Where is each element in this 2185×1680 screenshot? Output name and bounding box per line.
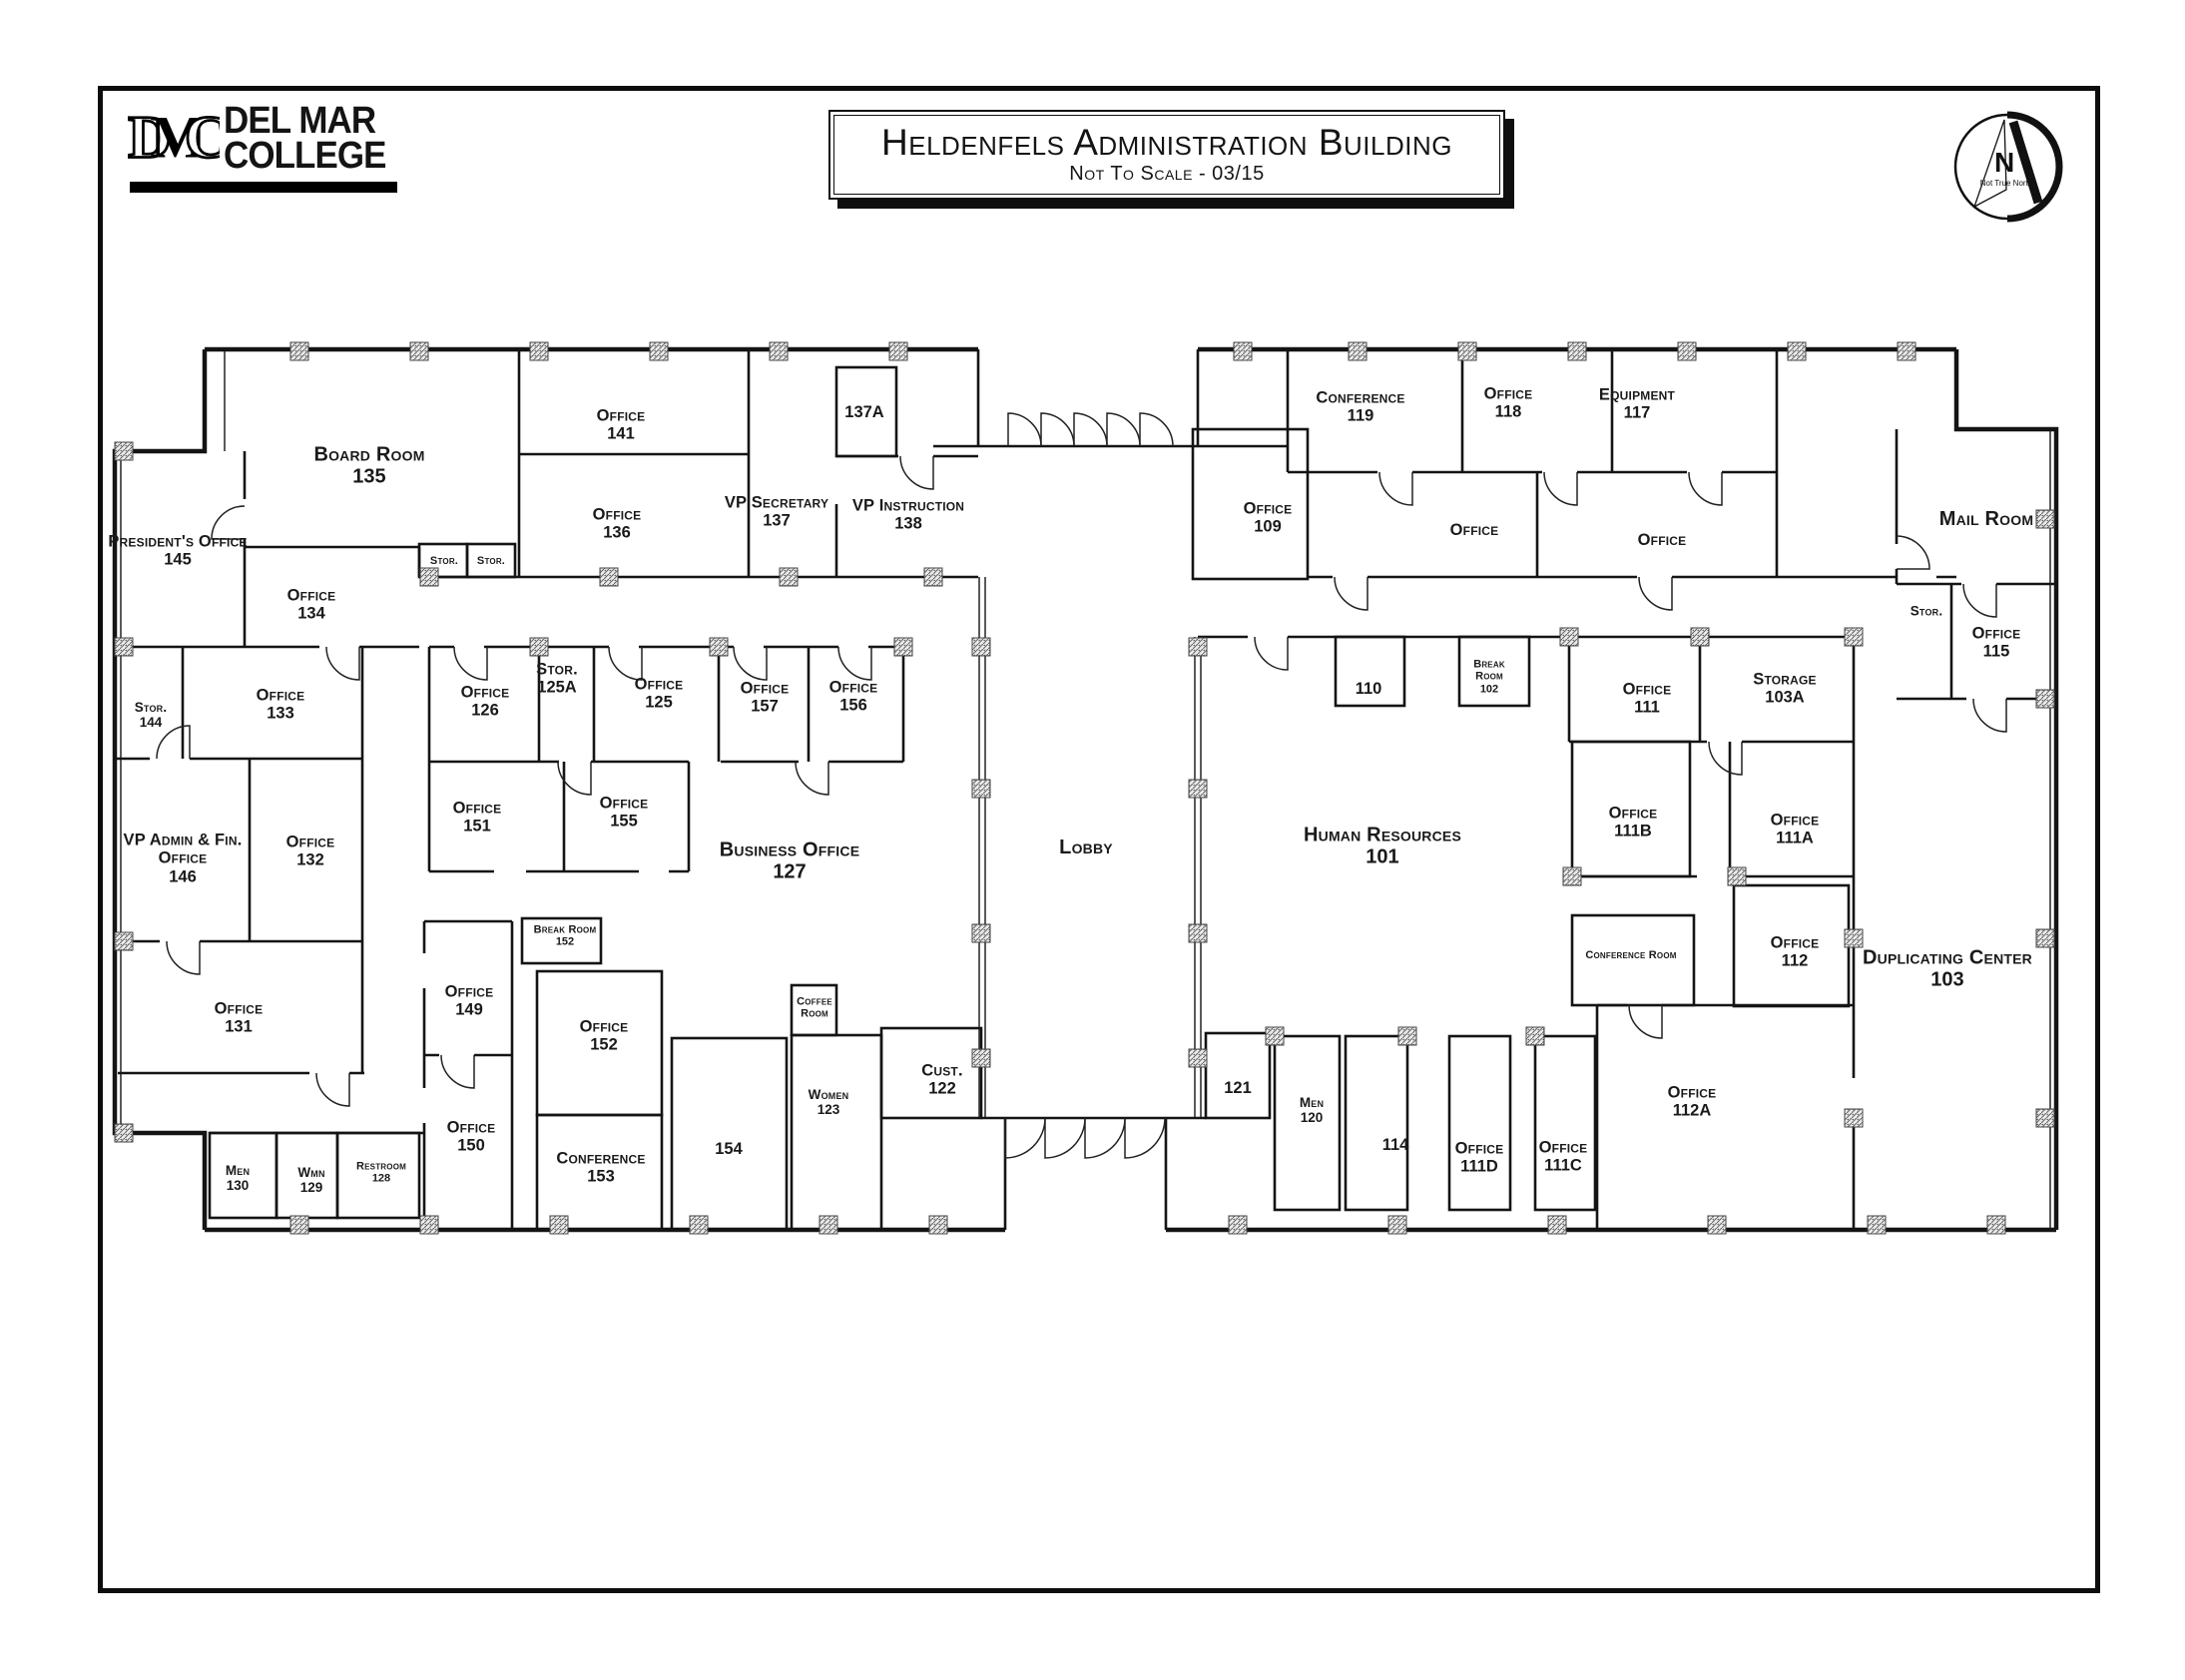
room-label-conference-room: Conference Room [1582, 949, 1680, 961]
room-label-125: Office125 [635, 676, 684, 713]
room-label-137: VP Secretary137 [717, 494, 836, 531]
room-label-118: Office118 [1484, 385, 1533, 422]
title-block-inner: Heldenfels Administration Building Not T… [833, 115, 1500, 195]
room-label-157: Office157 [741, 680, 790, 717]
logo-text: DEL MAR COLLEGE [224, 104, 386, 174]
room-label-134: Office134 [287, 587, 336, 624]
room-label-coffee-room: Coffee Room [786, 996, 843, 1021]
room-label-115: Office115 [1972, 625, 2021, 662]
room-label-154: 154 [715, 1140, 743, 1158]
logo-underline-bar [130, 182, 397, 193]
room-label-131: Office131 [215, 1000, 264, 1037]
room-label-111d: Office111D [1455, 1140, 1504, 1177]
room-label-151: Office151 [453, 800, 502, 837]
room-label-111a: Office111A [1771, 812, 1820, 848]
room-label-stor-: Stor. [1911, 603, 1943, 618]
room-label-153: Conference153 [556, 1150, 645, 1187]
room-label-119: Conference119 [1316, 389, 1404, 426]
room-label-103: Duplicating Center103 [1863, 947, 2032, 992]
room-label-121: 121 [1224, 1079, 1252, 1097]
north-arrow-compass: N Not True North [1944, 104, 2070, 230]
room-label-127: Business Office127 [720, 840, 859, 884]
room-label-130: Men130 [226, 1163, 250, 1193]
compass-note: Not True North [1980, 179, 2032, 188]
room-label-lobby: Lobby [1059, 837, 1113, 858]
room-label-125a: Stor.125A [536, 661, 578, 698]
logo-line-2: COLLEGE [224, 139, 386, 174]
room-label-109: Office109 [1244, 500, 1293, 537]
logo-line-1: DEL MAR [224, 104, 386, 139]
room-label-101: Human Resources101 [1304, 825, 1461, 869]
room-label-office: Office [1450, 521, 1499, 539]
del-mar-college-logo: D M C DEL MAR COLLEGE [128, 98, 400, 184]
drawing-subtitle: Not To Scale - 03/15 [1069, 163, 1264, 186]
room-label-136: Office136 [593, 506, 642, 543]
drawing-title: Heldenfels Administration Building [881, 124, 1452, 163]
room-label-129: Wmn129 [297, 1165, 324, 1195]
room-label-156: Office156 [829, 679, 878, 716]
room-label-mail-room: Mail Room [1939, 508, 2033, 530]
room-label-120: Men120 [1300, 1095, 1324, 1125]
room-label-111b: Office111B [1609, 805, 1658, 841]
room-label-152: Office152 [580, 1018, 629, 1055]
floor-plan-labels: Board Room135Office141Office136VP Secret… [0, 0, 2185, 1680]
room-label-128: Restroom128 [356, 1161, 406, 1186]
room-label-office: Office [1638, 531, 1687, 549]
room-label-150: Office150 [447, 1119, 496, 1156]
room-label-112: Office112 [1771, 934, 1820, 971]
svg-text:C: C [185, 105, 220, 172]
room-label-155: Office155 [600, 795, 649, 832]
room-label-135: Board Room135 [313, 444, 424, 489]
room-label-111c: Office111C [1539, 1139, 1588, 1176]
room-label-126: Office126 [461, 684, 510, 721]
room-label-141: Office141 [597, 407, 646, 444]
room-label-123: Women123 [809, 1087, 849, 1117]
room-label-146: VP Admin & Fin. Office146 [101, 831, 266, 885]
room-label-122: Cust.122 [921, 1062, 963, 1099]
room-label-133: Office133 [257, 687, 305, 724]
room-label-103a: Storage103A [1753, 671, 1817, 708]
room-label-149: Office149 [445, 983, 494, 1020]
floor-plan-page: Board Room135Office141Office136VP Secret… [0, 0, 2185, 1680]
room-label-112a: Office112A [1668, 1084, 1717, 1121]
compass-n-letter: N [1994, 147, 2014, 178]
room-label-stor-: Stor. [477, 555, 505, 567]
room-label-111: Office111 [1623, 681, 1672, 718]
room-label-110: 110 [1356, 680, 1382, 698]
room-label-144: Stor.144 [135, 700, 168, 730]
dmc-logo-mark: D M C [128, 98, 220, 184]
room-label-132: Office132 [286, 834, 335, 870]
room-label-152: Break Room152 [524, 924, 606, 949]
room-label-145: President's Office145 [106, 533, 251, 570]
room-label-114: 114 [1382, 1136, 1409, 1154]
title-block: Heldenfels Administration Building Not T… [828, 110, 1505, 200]
room-label-137a: 137A [844, 403, 883, 421]
room-label-138: VP Instruction138 [841, 497, 976, 534]
room-label-stor-: Stor. [430, 555, 458, 567]
room-label-102: Break Room102 [1458, 659, 1520, 696]
room-label-117: Equipment117 [1599, 386, 1675, 423]
